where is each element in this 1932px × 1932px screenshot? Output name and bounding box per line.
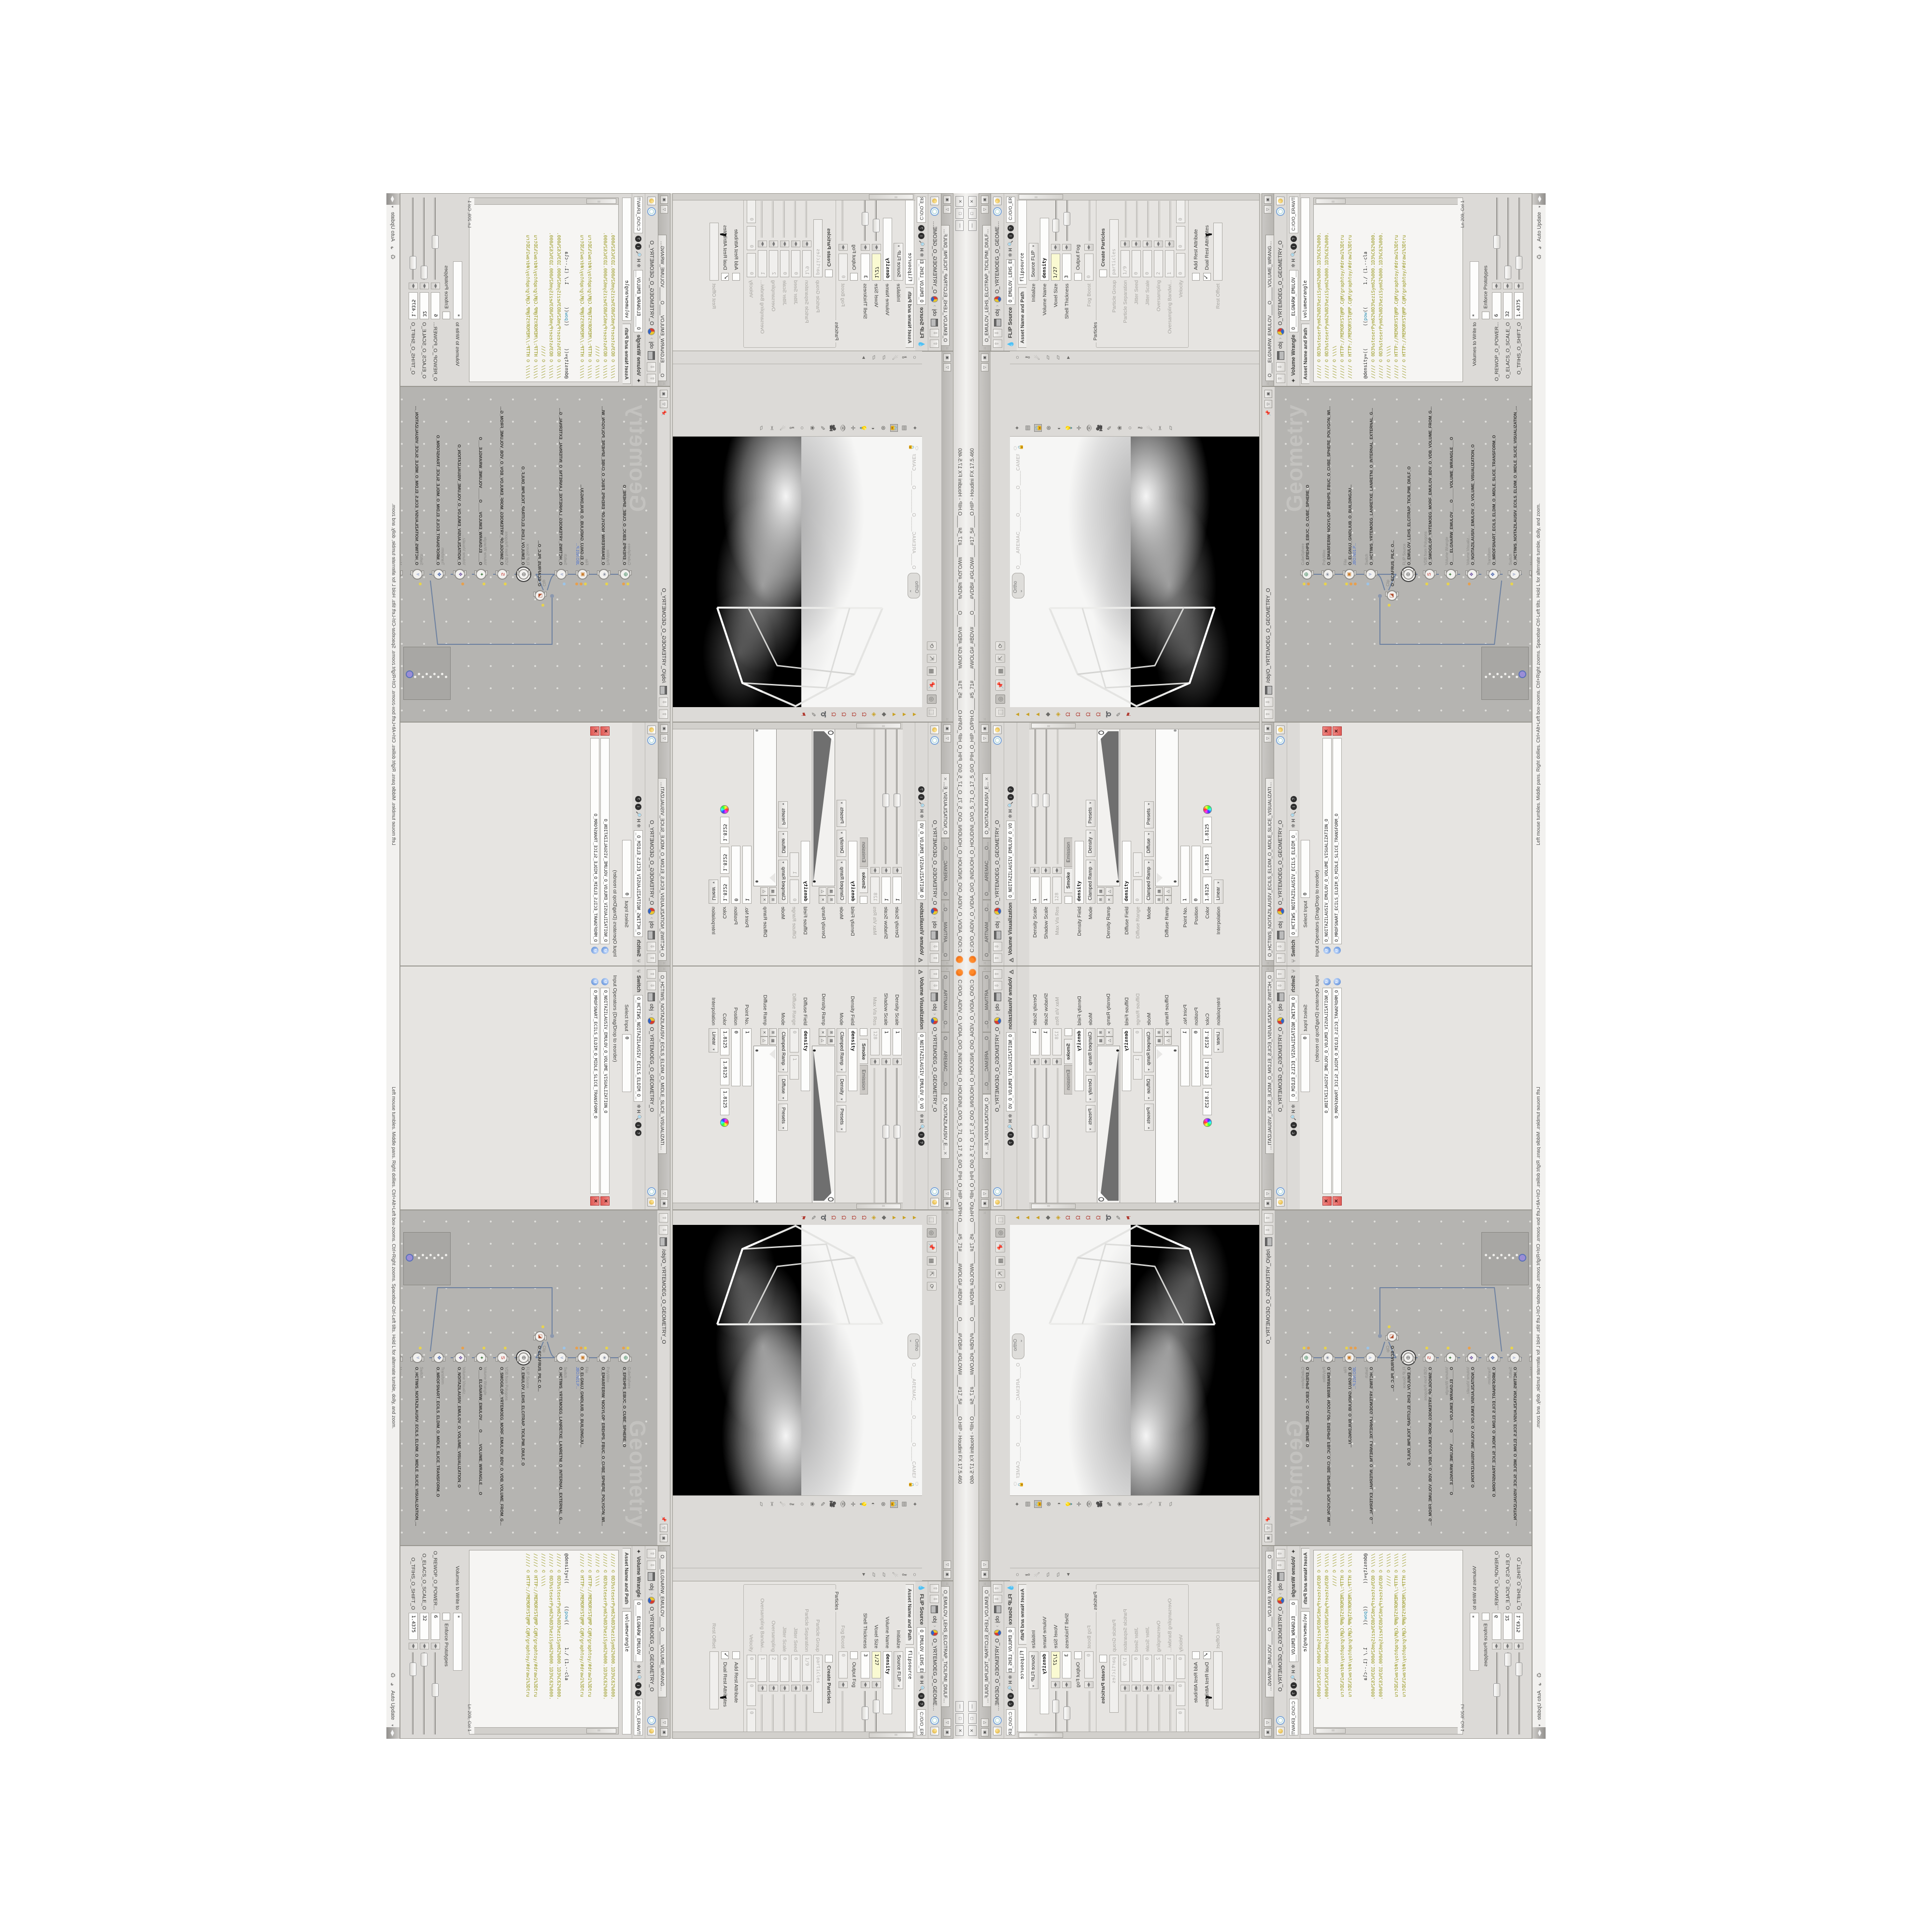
node-input-stub[interactable] [464,1357,467,1362]
nav-up-icon[interactable]: ⇧ [993,340,1002,348]
node-output-stub[interactable] [1354,570,1356,575]
input-operator-row[interactable]: ↺O_NOITAZILAUSIV_EMULOV_O_VOLUME_VISUALI… [600,966,610,1209]
param-slider[interactable] [871,1068,879,1206]
param-slider[interactable] [1143,1694,1151,1731]
node-input-stub[interactable] [544,1335,547,1340]
pin-icon[interactable]: 📌 [927,1241,937,1252]
param-field[interactable]: 1.8125 [720,1058,729,1085]
tab-smoke[interactable]: Smoke [860,1039,868,1064]
param-field[interactable]: 6 [431,1613,440,1640]
param-slider[interactable] [792,1694,800,1731]
node-input-stub[interactable] [1487,570,1489,575]
param-field[interactable]: 1 [1133,852,1142,877]
contrast-icon[interactable]: ◐ [870,1502,877,1506]
color-wheel-icon[interactable] [721,1118,729,1127]
spinner-icon[interactable]: ◀▶ [872,244,881,251]
target-icon[interactable]: ◎ [927,695,937,703]
param-slider[interactable] [839,1691,847,1734]
pin-icon[interactable]: 📌 [927,680,937,691]
param-menu[interactable]: Presets [1086,1105,1095,1132]
param-checkbox[interactable] [733,273,740,281]
nav-up-icon[interactable]: ⇧ [993,969,1002,979]
slider-handle[interactable] [1516,1662,1522,1676]
param-field[interactable]: 1 [1041,1028,1051,1055]
param-menu[interactable]: Presets [779,1104,788,1131]
ramp-button[interactable]: ▦ [1155,1037,1163,1045]
param-field[interactable]: 2 [1154,1655,1163,1682]
magnifier-icon[interactable]: 🔍 [919,1686,924,1691]
magnifier-icon[interactable]: 🔍 [1008,1686,1013,1691]
info-icon[interactable]: i [919,1693,925,1699]
flower-icon[interactable]: ❀ [809,1502,816,1506]
pane-maximize-icon[interactable]: ▣ [1264,390,1272,398]
slider-handle[interactable] [894,1125,900,1138]
viewport-render[interactable]: Ortho ⌄ O____AREMAC_____O________O_____C… [1010,437,1259,707]
pane-maximize-icon[interactable]: ▣ [660,390,668,398]
camera-icon[interactable]: 🎥 [829,425,836,432]
node-input-stub[interactable] [566,570,568,575]
code-scrollbar[interactable]: ⠿ [1314,198,1458,205]
pin-target-icon[interactable] [647,736,656,745]
param-menu[interactable]: Clamped Ramp [779,860,788,904]
node-output-stub[interactable] [1434,570,1436,575]
tab-flip-source[interactable]: O_EMULOV_LEHS_ELCITRAP_TICILPMI_DIULF_O_… [941,1586,950,1707]
brush-icon[interactable]: ✎ [1115,712,1122,717]
cook-mode-icon[interactable]: ◕ [1536,246,1543,250]
key-icon[interactable]: ⚷ [789,1502,796,1506]
network-node[interactable]: ✳ [1323,569,1334,580]
asset-path-field[interactable]: C:/O/O_ERAWTFOS_... [1006,197,1015,223]
network-node[interactable]: ▣ [577,569,588,580]
node-input-stub[interactable] [528,570,530,575]
network-node[interactable]: ❖ [455,1352,465,1363]
param-menu[interactable]: Diffuse [1144,831,1154,857]
gold-ball-icon[interactable] [1276,197,1285,205]
contrast-icon[interactable]: ◐ [1055,426,1062,429]
spinner-icon[interactable]: ◀▶ [893,1058,902,1065]
param-field[interactable]: 1/27 [872,1651,881,1678]
nav-up-icon[interactable]: ⇧ [1276,1549,1285,1558]
magnifier-icon[interactable]: 🔍 [1008,241,1013,246]
density-ramp-widget[interactable] [812,1046,835,1206]
node-name-field[interactable]: O____ELGNARW_EMULOV____O_____VOl [1289,270,1298,332]
breadcrumb-path[interactable]: O_YRTEMOEG_O_GEOMETRY_O [649,241,654,326]
gear-icon[interactable]: ✻ [636,264,641,268]
frame-icon[interactable]: ⬚ [927,1215,937,1224]
node-name-field[interactable]: O____ELGNARW_EMULOV____O_____VOl [634,1600,643,1662]
param-slider[interactable] [1143,201,1151,238]
node-output-stub[interactable] [453,570,455,575]
input-operator-row[interactable]: ↺O_NOITAZILAUSIV_EMULOV_O_VOLUME_VISUALI… [1322,966,1332,1209]
help-icon[interactable]: ? [1291,236,1297,242]
node-output-stub[interactable] [1519,1357,1521,1362]
image-icon[interactable]: ▤ [1024,1501,1031,1506]
param-slider[interactable] [803,201,811,238]
gear-icon[interactable]: ✻ [919,253,924,257]
param-menu[interactable]: Presets [779,801,788,828]
param-field[interactable]: 3 [1062,1651,1071,1678]
input-operator-name[interactable]: O_NOITAZILAUSIV_EMULOV_O_VOLUME_VISUALIZ… [600,988,610,1194]
hscript-icon[interactable]: H [1008,1680,1013,1684]
node-input-stub[interactable] [443,570,445,575]
pane-grip-icon[interactable]: ⁙ [1263,961,1274,966]
slider-handle[interactable] [1493,236,1500,249]
gear-icon[interactable]: ✻ [1291,824,1296,827]
gear-icon[interactable]: ✻ [1008,253,1013,257]
viewport-render[interactable]: Ortho ⌄ O____AREMAC_____O________O_____C… [673,1225,922,1495]
node-input-stub[interactable] [485,1357,488,1362]
eye-icon[interactable]: 👁 [839,424,846,431]
view-icon[interactable]: ◆ [881,1215,888,1220]
spinner-icon[interactable]: ◀▶ [1165,1685,1174,1691]
param-field[interactable]: 0 [1192,1028,1201,1086]
info-icon[interactable]: i [1291,1682,1297,1689]
pencil-icon[interactable]: ✎ [1106,426,1113,430]
asset-path-field[interactable]: C:/O/O_ERAWTFOS_... [917,197,926,223]
network-node[interactable]: S [497,569,508,580]
camera-lock-icon[interactable]: ⬭ 🔒 [909,440,919,450]
breadcrumb-obj[interactable]: obj [649,1004,654,1011]
node-output-stub[interactable] [1311,1357,1314,1362]
pane-menu-icon[interactable]: ▽ [981,1719,989,1727]
asset-path-field[interactable]: C:/O/O_ERAWTFOS_... [634,197,643,233]
pin-icon[interactable]: 📌 [661,410,667,416]
magnifier-icon[interactable]: 🔍 [1291,811,1296,817]
breadcrumb-obj[interactable]: obj [932,1616,938,1623]
tab-volume-wrangle[interactable]: O____ELGNARW_EMULOV____O_____VOLUME_WRAN… [658,235,667,381]
param-field[interactable]: particles [1109,219,1119,277]
slider-handle[interactable] [410,256,416,270]
close-tab-icon[interactable]: ✕ [1267,1694,1272,1697]
minimize-button[interactable]: — [968,220,977,231]
tab-camera[interactable]: O____AREMAC____O... [982,838,991,899]
expand-icon[interactable]: ⇱ [995,654,1005,663]
param-field[interactable]: 1 [881,877,891,904]
poly-icon[interactable]: ▱ [871,355,878,359]
ramp-button[interactable]: ▦ [1097,887,1105,895]
node-output-stub[interactable] [554,570,557,575]
param-menu[interactable]: Presets [1144,1104,1154,1131]
camera-path-label[interactable]: O____AREMAC_____O________O_____CAMERA___… [911,1363,917,1478]
remove-input-icon[interactable]: ✕ [1333,726,1342,736]
nav-down-icon[interactable]: ⇩ [930,942,939,951]
input-operator-row[interactable]: ↺O_NOITAZILAUSIV_EMULOV_O_VOLUME_VISUALI… [600,723,610,966]
code-scrollbar[interactable]: ⠿ [1314,1727,1458,1734]
breadcrumb-path[interactable]: O_YRTEMOEG_O_GEOMETRY_O [649,1027,654,1112]
param-field[interactable]: 1 [1180,846,1190,904]
auto-update-selector[interactable]: Auto Update [390,1690,396,1720]
param-field[interactable]: 1 [893,1028,902,1055]
node-input-stub[interactable] [608,570,611,575]
input-operator-name[interactable]: O_MROFSNART_ECILS_ELDIM_O_MIDLE_SLICE_TR… [1333,738,1342,944]
spinner-icon[interactable]: ◀▶ [1154,241,1163,247]
breadcrumb-path[interactable]: O_YRTEMOEG_O_GEOMETRY_O [932,820,938,905]
param-slider[interactable] [1121,1694,1129,1731]
param-field[interactable]: 0 [1192,846,1201,904]
gear-icon[interactable]: ✻ [1291,264,1296,268]
node-output-stub[interactable] [411,1357,413,1362]
param-slider[interactable] [1132,1694,1140,1731]
param-slider[interactable] [861,1691,869,1734]
input-operator-name[interactable]: O_MROFSNART_ECILS_ELDIM_O_MIDLE_SLICE_TR… [1333,988,1342,1194]
ramp-button[interactable]: ⊞ [1097,1028,1105,1037]
move-icon[interactable]: ✛ [1076,1502,1082,1506]
breadcrumb-path[interactable]: O_YRTEMOEG_O_GEOMETRY_O [1278,1606,1283,1691]
ramp-button[interactable]: ⊞ [1155,895,1163,904]
param-field[interactable]: 0 [731,1028,740,1086]
network-node[interactable]: ⑂ [556,1352,567,1363]
param-checkbox[interactable] [1192,273,1200,281]
hscript-icon[interactable]: H [636,1670,641,1673]
param-field[interactable]: 0 [790,1028,799,1052]
input-operator-row[interactable]: ↺O_MROFSNART_ECILS_ELDIM_O_MIDLE_SLICE_T… [590,723,600,966]
node-output-stub[interactable] [1375,1357,1378,1362]
node-name-field[interactable]: O_HCTIWS_NOITAZILAUSIV_ECILS_ELDIM_O_ [1289,830,1298,938]
spinner-icon[interactable]: ◀▶ [1514,283,1523,289]
eye-icon[interactable]: 👁 [1086,424,1093,431]
param-slider[interactable] [431,1652,440,1734]
slider-handle[interactable] [421,1653,427,1666]
ramp-button[interactable]: ⊞ [1155,1028,1163,1037]
auto-update-selector[interactable]: Auto Update [390,212,396,241]
tab-emission[interactable]: Emission [860,838,868,867]
camera-lock-icon[interactable]: ⬭ 🔒 [1013,1482,1023,1492]
param-field[interactable]: 2 [769,250,778,277]
help-icon[interactable]: ? [1291,1130,1297,1136]
help-icon[interactable]: ? [1008,1139,1014,1146]
camera-path-label[interactable]: O____AREMAC_____O________O_____CAMERA___… [1016,454,1021,569]
network-node[interactable]: ◍ [518,1352,529,1363]
hscript-icon[interactable]: H [1291,819,1296,822]
spinner-icon[interactable]: ◀▶ [893,867,902,874]
close-tab-icon[interactable]: ✕ [984,777,989,781]
param-checkbox[interactable] [1065,896,1072,904]
frame-icon[interactable]: ⬚ [995,708,1005,717]
nav-down-icon[interactable]: ⇩ [930,981,939,990]
pane-maximize-icon[interactable]: ▣ [981,724,989,733]
nav-up-icon[interactable]: ⇧ [930,1584,939,1592]
param-field[interactable]: 1.8125 [1203,817,1212,844]
gear-icon[interactable]: ✻ [919,1114,924,1118]
tab-asset-name-path[interactable]: Asset Name and Path [1018,1584,1026,1645]
param-menu[interactable]: Clamped Ramp [1086,860,1095,904]
nav-down-icon[interactable]: ⇩ [659,1225,668,1235]
tab-smoke[interactable]: Smoke [1064,868,1072,893]
ramp-button[interactable]: ✕ [1164,1028,1172,1037]
comet-icon[interactable]: ☄ [891,355,898,360]
remove-input-icon[interactable]: ✕ [1322,726,1332,736]
param-field[interactable] [710,1651,719,1709]
param-field[interactable]: density [1040,1651,1049,1714]
light-icon[interactable]: ▲ [901,1215,908,1221]
tab-flip-source[interactable]: O_EMULOV_LEHS_ELCITRAP_TICILPMI_DIULF_O_… [982,225,991,346]
slider-handle[interactable] [862,1706,868,1720]
param-field[interactable]: 128 [1052,877,1062,904]
nav-up-icon[interactable]: ⇧ [647,953,656,963]
breadcrumb-path[interactable]: O_YRTEMOEG_O_GEOMETRY_O [649,1606,654,1691]
magnifier-icon[interactable]: 🔍 [636,251,641,257]
param-menu[interactable]: Density [837,1075,847,1102]
param-field[interactable]: flipsource [905,1648,914,1734]
tab-mantra[interactable]: O____ARTNAM____O... [982,971,991,1032]
network-canvas[interactable]: Geometry [400,1210,657,1545]
param-field[interactable]: 0 [747,1682,756,1706]
param-field[interactable]: 1 [1041,877,1051,904]
node-input-stub[interactable] [587,1357,589,1362]
pin-icon[interactable]: 📌 [995,1241,1005,1252]
tab-camera[interactable]: O____AREMAC____O... [982,1032,991,1094]
slider-handle[interactable] [1032,1125,1038,1138]
node-output-stub[interactable] [411,570,413,575]
gold-ball-icon[interactable] [1276,1727,1285,1735]
breadcrumb-path[interactable]: O_YRTEMOEG_O_GEOMETRY_O [994,1027,1000,1112]
breadcrumb-path[interactable]: O_YRTEMOEG_O_GEOMETRY_O [994,820,1000,905]
param-slider[interactable] [758,1694,767,1731]
param-field[interactable]: 1 [1165,1655,1174,1682]
tab-flip-source[interactable]: O_EMULOV_LEHS_ELCITRAP_TICILPMI_DIULF_O_… [941,225,950,346]
pane-maximize-icon[interactable]: ▣ [1264,1199,1272,1207]
magnet-icon[interactable]: Ω [1095,1216,1102,1220]
gold-ball-icon[interactable] [647,1198,656,1207]
pane-menu-icon[interactable]: ▽ [943,363,951,371]
network-canvas[interactable]: Geometry [400,387,657,722]
tab-camera[interactable]: O____AREMAC____O... [941,838,950,899]
param-menu[interactable]: Presets [1144,801,1154,828]
gold-ball-icon[interactable] [930,725,939,734]
node-name-field[interactable]: O_HCTIWS_NOITAZILAUSIV_ECILS_ELDIM_O_ [634,830,643,938]
info-icon[interactable]: i [1291,243,1297,250]
pane-maximize-icon[interactable]: ▣ [943,196,951,204]
maximize-button[interactable]: □ [968,1713,977,1724]
param-slider[interactable] [1121,201,1129,238]
gear-icon[interactable]: ✻ [1008,1675,1013,1679]
magnifier-icon[interactable]: 🔍 [1291,1115,1296,1121]
param-field[interactable]: 3 [1062,254,1071,281]
light-icon[interactable]: ▲ [1034,711,1041,717]
param-field[interactable]: flipsource [905,198,914,284]
node-output-stub[interactable] [618,1357,621,1362]
tab-mantra[interactable]: O____ARTNAM____O... [941,971,950,1032]
magnet-icon[interactable]: Ω [851,1216,857,1220]
slider-handle[interactable] [1516,256,1522,270]
lock-camera-icon[interactable]: 🔒 [890,1500,898,1508]
param-slider[interactable] [1515,1652,1523,1734]
param-slider[interactable] [409,1652,417,1734]
spinner-icon[interactable]: ◀▶ [409,1643,418,1649]
spinner-icon[interactable]: ◀▶ [1121,241,1130,247]
spinner-icon[interactable]: ◀▶ [1492,1643,1501,1649]
pane-menu-icon[interactable]: ▽ [981,734,989,742]
camera-icon[interactable]: 🎥 [829,1501,836,1508]
param-field[interactable]: 1 [1165,250,1174,277]
tab-switch[interactable]: O_HCTIWS_NOITAZILAUSIV_ECILS_ELDIM_O_MID… [658,778,667,961]
nav-down-icon[interactable]: ⇩ [647,1561,656,1570]
hscript-icon[interactable]: H [636,258,641,262]
dot-icon[interactable]: ○ [799,1502,806,1506]
network-node[interactable]: ▣ [577,1352,588,1363]
wrangle-name-field[interactable]: volumewrangle [1301,198,1310,321]
diffuse-ramp-widget[interactable] [1155,726,1179,886]
poly-icon[interactable]: ▱ [1167,426,1174,430]
param-field[interactable]: 1/9 [1121,1655,1130,1682]
magnifier-icon[interactable]: 🔍 [919,802,924,808]
param-field[interactable]: 1/9 [802,250,811,277]
poly-icon[interactable]: ▱ [1054,355,1061,359]
node-output-stub[interactable] [474,1357,477,1362]
vex-code-editor[interactable]: ///// © 0D3%steserPym62%0D3%eziSym62%000… [1313,198,1463,382]
nav-up-icon[interactable]: ⇧ [1264,710,1273,719]
bulb-icon[interactable]: 💡 [1065,425,1072,432]
image-icon[interactable]: ▤ [1024,425,1031,430]
param-field[interactable]: 0 [747,226,756,250]
hscript-icon[interactable]: H [636,819,641,822]
gold-ball-icon[interactable] [930,197,939,205]
select-icon[interactable]: ✦ [1014,426,1021,430]
lasso-icon[interactable]: ➰ [1105,1214,1112,1222]
light-icon[interactable]: ▲ [891,711,898,717]
param-field[interactable]: 1 [881,1028,891,1055]
param-field[interactable]: * [453,1613,462,1671]
pin-target-icon[interactable] [1276,736,1285,745]
breadcrumb-obj[interactable]: obj [932,1004,938,1011]
breadcrumb-obj[interactable]: obj [1278,341,1283,349]
nav-up-icon[interactable]: ⇧ [993,1584,1002,1592]
pane-menu-icon[interactable]: ▽ [660,734,668,742]
magnet-icon[interactable]: Ω [1065,712,1071,717]
spinner-icon[interactable]: ◀▶ [431,283,440,289]
node-output-stub[interactable] [618,570,621,575]
title-bar[interactable]: C:/O/O_AIDIV_O_VIDIA_O/O_INIDUOH_O_HOUDI… [953,966,966,1739]
light-icon[interactable]: ▲ [1014,1215,1021,1221]
breadcrumb-path[interactable]: O_YRTEMOEG_O_GEOMETRY_O [932,1638,938,1714]
help-icon[interactable]: ? [919,225,925,231]
expand-icon[interactable]: ⇱ [927,654,937,663]
param-checkbox[interactable] [1099,1655,1107,1662]
network-node[interactable]: ❖ [1467,569,1477,580]
slider-handle[interactable] [421,266,427,279]
spinner-icon[interactable]: ◀▶ [802,1685,811,1691]
pane-grip-icon[interactable]: ⁙ [941,346,952,351]
magnet-icon[interactable]: Ω [840,712,847,717]
spinner-icon[interactable]: ◀▶ [1143,1685,1152,1691]
poly-icon[interactable]: ▱ [758,1502,765,1506]
help-icon[interactable]: ? [919,1139,925,1146]
remove-input-icon[interactable]: ✕ [1333,1196,1342,1206]
help-icon[interactable]: ? [919,786,925,793]
param-slider[interactable] [1031,726,1039,864]
param-field[interactable]: 1 [742,846,752,904]
dot-icon[interactable]: ○ [1014,355,1021,359]
node-name-field[interactable]: O_EMULOV_LEHS_ELCITRAP_TICILPMI_DI [917,259,926,305]
param-slider[interactable] [872,1691,881,1734]
spinner-icon[interactable]: ◀▶ [1143,241,1152,247]
spinner-icon[interactable]: ◀▶ [861,244,870,251]
light-icon[interactable]: ▲ [901,711,908,717]
param-field[interactable]: 0 [1176,1709,1185,1733]
param-slider[interactable] [1085,1691,1093,1734]
node-output-stub[interactable] [576,1357,578,1362]
spinner-icon[interactable]: ◀▶ [1051,1681,1060,1688]
ramp-button[interactable]: △ [819,1037,826,1045]
ramp-button[interactable]: △ [1164,1037,1172,1045]
pane-grip-icon[interactable]: ⁙ [941,717,952,722]
code-scrollbar[interactable]: ⠿ [474,1727,618,1734]
param-field[interactable]: 1 [1030,1028,1039,1055]
network-node[interactable]: ⑂ [1365,1352,1376,1363]
slider-handle[interactable] [1043,794,1050,807]
param-field[interactable]: 1/9 [802,1655,811,1682]
slider-handle[interactable] [432,236,439,249]
